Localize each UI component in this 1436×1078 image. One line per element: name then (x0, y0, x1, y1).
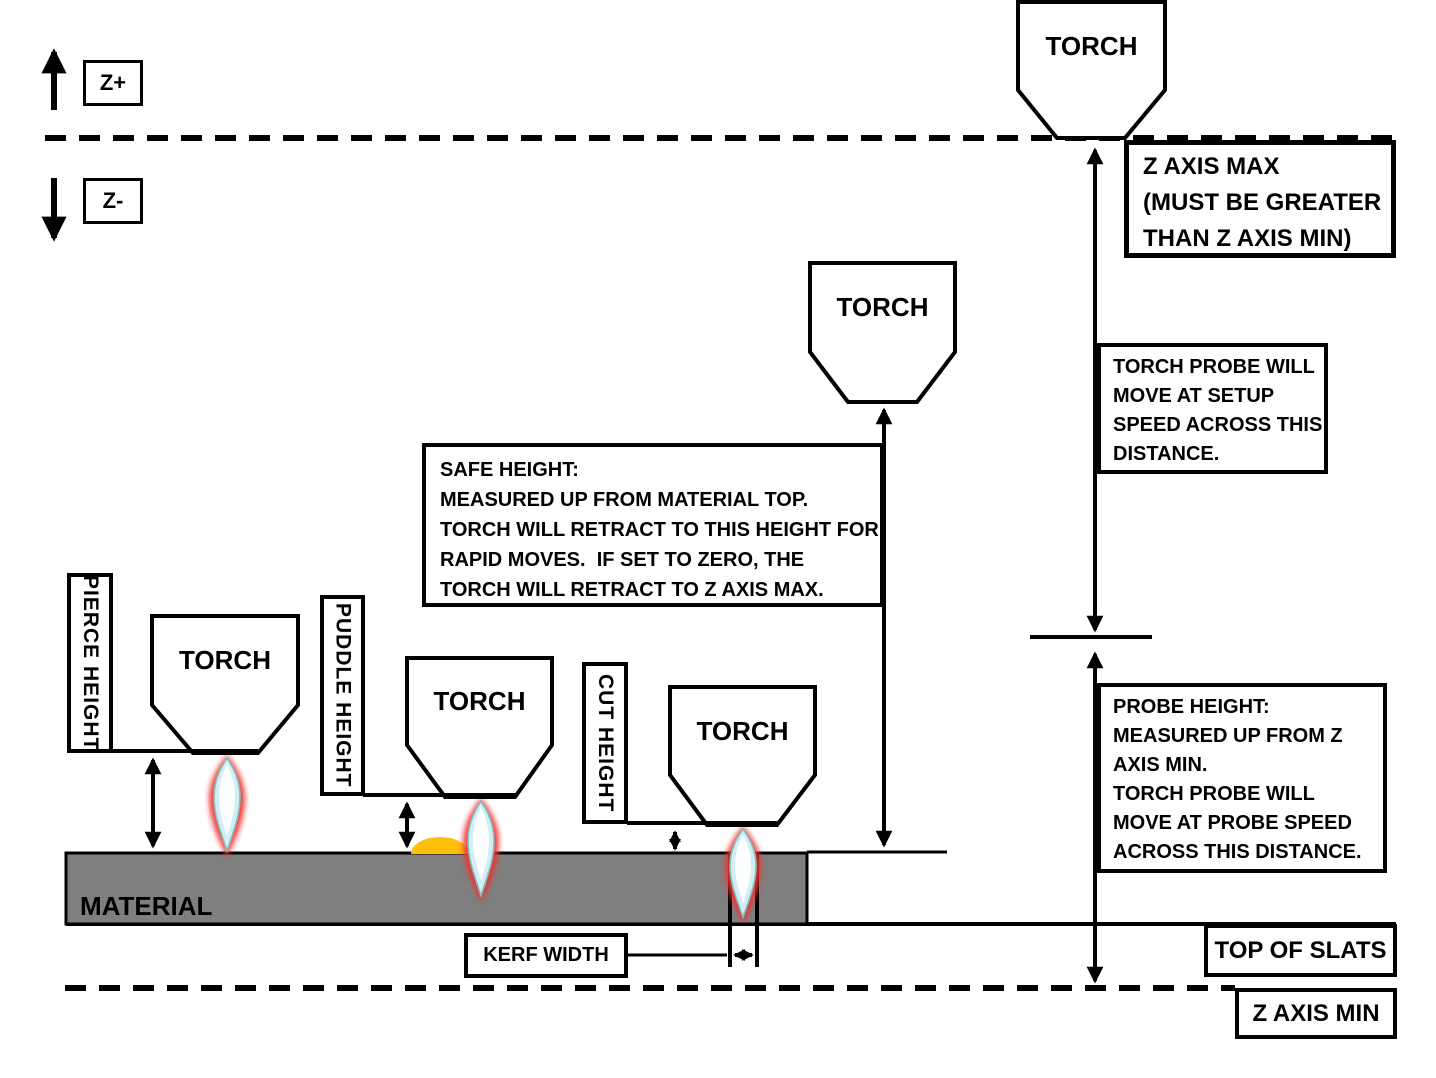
torch-pierce-label: TORCH (152, 645, 298, 676)
probe-height-line-3: AXIS MIN. (1113, 751, 1383, 780)
z-plus-label-box: Z+ (83, 60, 143, 106)
safe-height-callout: SAFE HEIGHT: MEASURED UP FROM MATERIAL T… (422, 443, 884, 607)
torch-pierce-shape (152, 616, 298, 753)
probe-height-callout: PROBE HEIGHT: MEASURED UP FROM Z AXIS MI… (1097, 683, 1387, 873)
z-axis-max-line-3: THAN Z AXIS MIN) (1143, 221, 1391, 257)
probe-height-line-5: MOVE AT PROBE SPEED (1113, 809, 1383, 838)
z-minus-label: Z- (103, 188, 124, 214)
puddle-icon (411, 837, 469, 854)
cut-height-label-box: CUT HEIGHT (582, 662, 628, 824)
z-minus-label-box: Z- (83, 178, 143, 224)
safe-height-line-1: SAFE HEIGHT: (440, 455, 880, 485)
setup-speed-callout: TORCH PROBE WILL MOVE AT SETUP SPEED ACR… (1097, 343, 1328, 474)
safe-height-line-2: MEASURED UP FROM MATERIAL TOP. (440, 485, 880, 515)
safe-height-line-3: TORCH WILL RETRACT TO THIS HEIGHT FOR (440, 515, 880, 545)
safe-height-line-4: RAPID MOVES. IF SET TO ZERO, THE (440, 545, 880, 575)
z-axis-min-label: Z AXIS MIN (1252, 1000, 1379, 1028)
puddle-height-label: PUDDLE HEIGHT (331, 603, 355, 788)
torch-cut-label: TORCH (670, 716, 815, 747)
setup-speed-line-2: MOVE AT SETUP (1113, 382, 1324, 411)
torch-safe-height-shape (810, 263, 955, 402)
pierce-height-label-box: PIERCE HEIGHT (67, 573, 113, 753)
z-axis-max-callout: Z AXIS MAX (MUST BE GREATER THAN Z AXIS … (1124, 140, 1396, 258)
probe-height-line-4: TORCH PROBE WILL (1113, 780, 1383, 809)
top-of-slats-label: TOP OF SLATS (1214, 937, 1386, 965)
setup-speed-line-1: TORCH PROBE WILL (1113, 353, 1324, 382)
z-plus-label: Z+ (100, 70, 126, 96)
kerf-width-label: KERF WIDTH (483, 944, 609, 967)
torch-puddle-shape (407, 658, 552, 797)
z-axis-min-label-box: Z AXIS MIN (1235, 988, 1397, 1039)
torch-z-max-label: TORCH (1018, 31, 1165, 62)
pierce-flame-icon (209, 755, 245, 857)
probe-height-line-1: PROBE HEIGHT: (1113, 693, 1383, 722)
z-axis-max-line-2: (MUST BE GREATER (1143, 185, 1391, 221)
cut-height-label: CUT HEIGHT (593, 674, 617, 812)
kerf-width-label-box: KERF WIDTH (464, 933, 628, 978)
torch-height-diagram: Z+ Z- TORCH TORCH TORCH TORCH TORCH Z AX… (0, 0, 1436, 1078)
setup-speed-line-3: SPEED ACROSS THIS (1113, 411, 1324, 440)
probe-height-line-6: ACROSS THIS DISTANCE. (1113, 838, 1383, 867)
torch-cut-shape (670, 687, 815, 825)
pierce-height-label: PIERCE HEIGHT (78, 575, 102, 751)
material-label: MATERIAL (80, 891, 212, 922)
probe-height-line-2: MEASURED UP FROM Z (1113, 722, 1383, 751)
setup-speed-line-4: DISTANCE. (1113, 440, 1324, 469)
torch-z-max-shape (1018, 2, 1165, 138)
puddle-height-label-box: PUDDLE HEIGHT (320, 595, 365, 796)
z-axis-max-line-1: Z AXIS MAX (1143, 149, 1391, 185)
torch-safe-height-label: TORCH (810, 292, 955, 323)
safe-height-line-5: TORCH WILL RETRACT TO Z AXIS MAX. (440, 575, 880, 605)
top-of-slats-label-box: TOP OF SLATS (1204, 924, 1397, 977)
torch-puddle-label: TORCH (407, 686, 552, 717)
